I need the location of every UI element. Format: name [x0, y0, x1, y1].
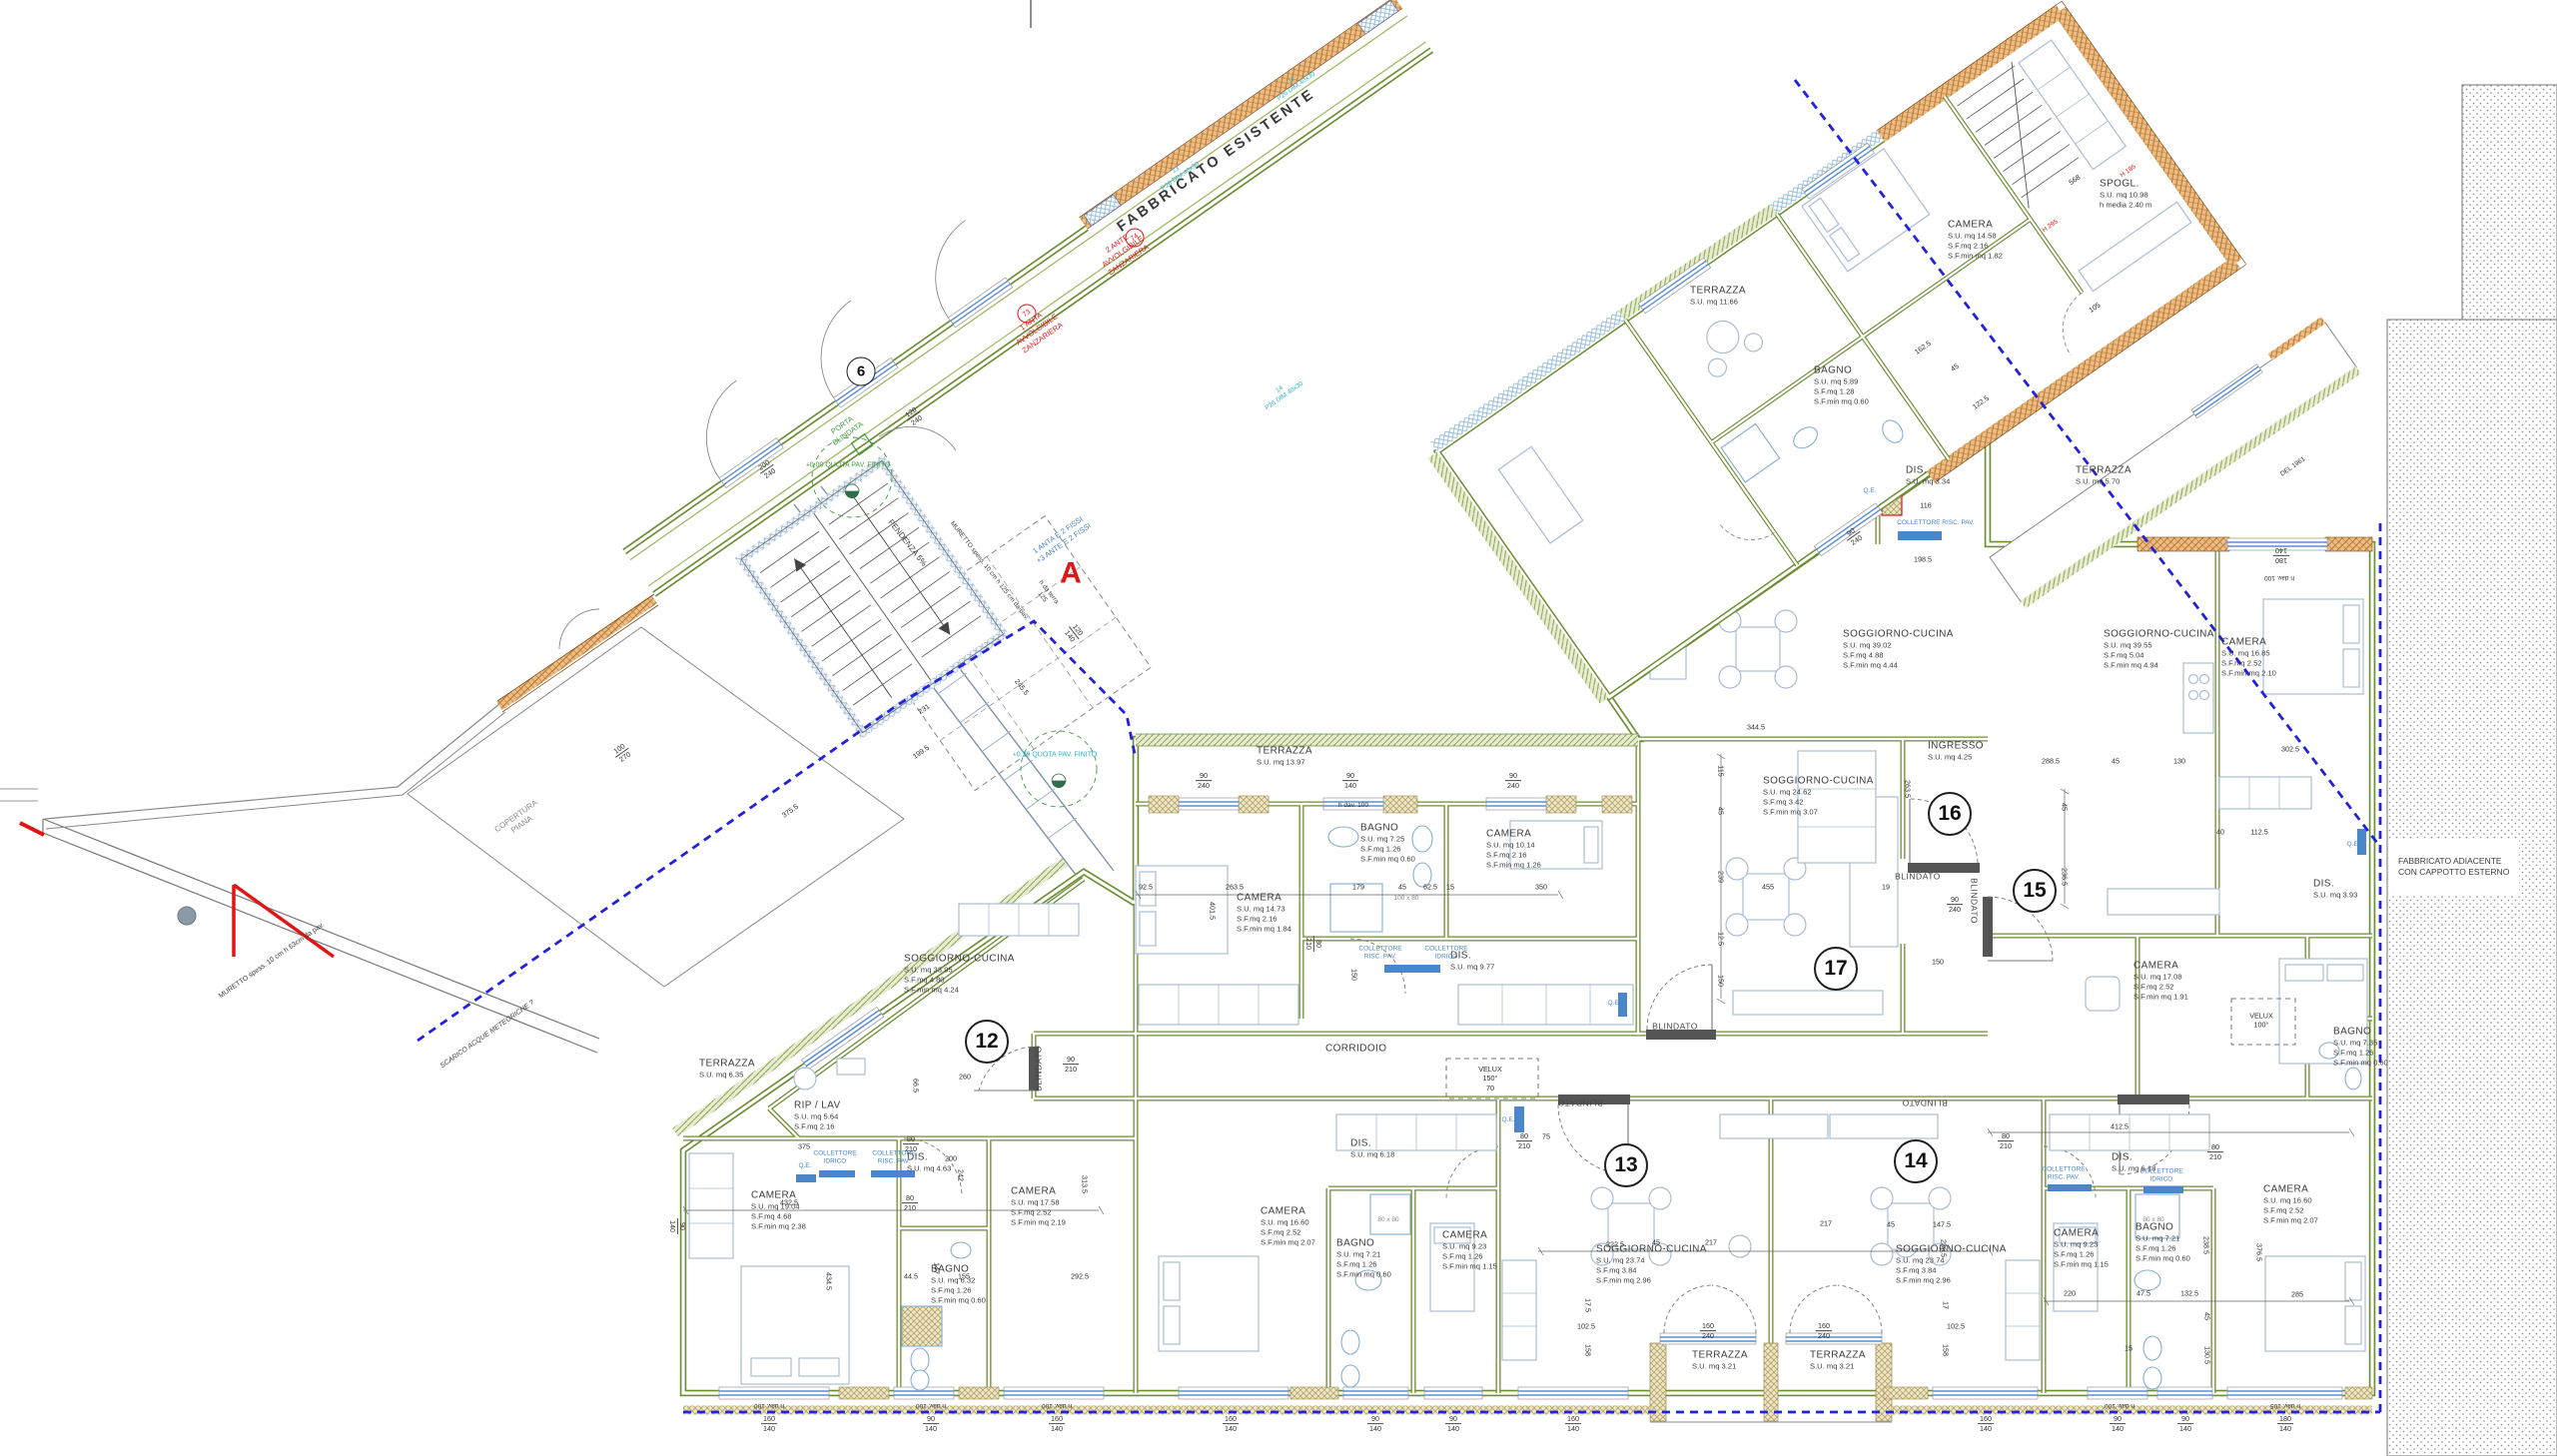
floor-plan-drawing	[0, 0, 2557, 1456]
stairs	[741, 460, 1003, 732]
floor-plan-sheet: SOGGIORNO-CUCINAS.U. mq 33.95S.F.mq 4.80…	[0, 0, 2557, 1456]
adjacent-building-hatch	[2387, 85, 2557, 1456]
existing-corridor-strip	[581, 0, 1463, 639]
